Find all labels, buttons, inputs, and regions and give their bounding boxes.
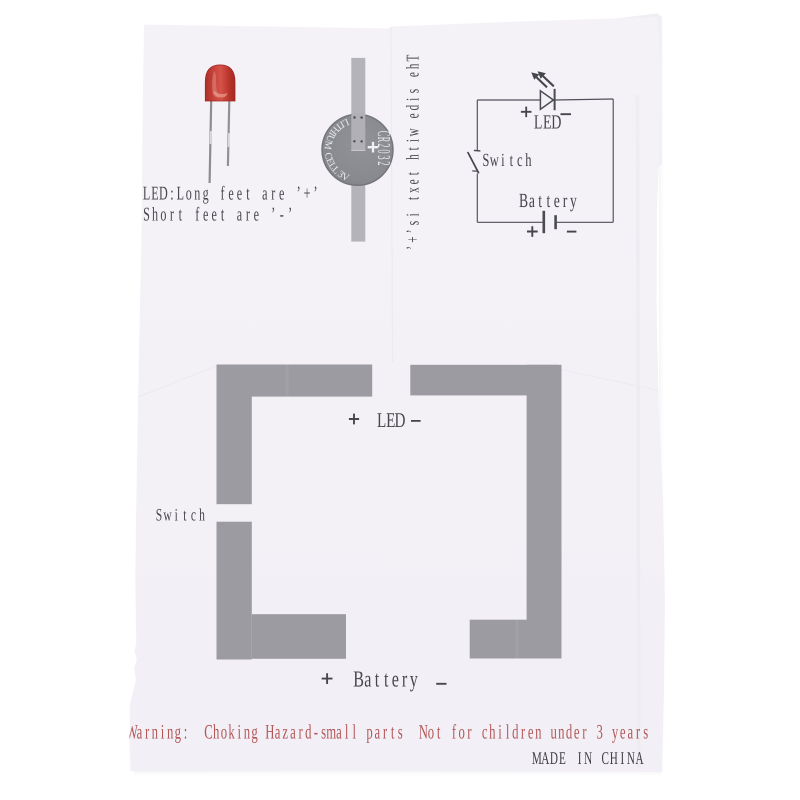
svg-text:Warning: Choking Hazard-small: Warning: Choking Hazard-small parts Not …: [126, 721, 648, 743]
svg-text:LED: LED: [377, 408, 405, 432]
svg-text:LED: LED: [534, 112, 562, 134]
svg-text:MADE IN CHINA: MADE IN CHINA: [532, 748, 644, 768]
